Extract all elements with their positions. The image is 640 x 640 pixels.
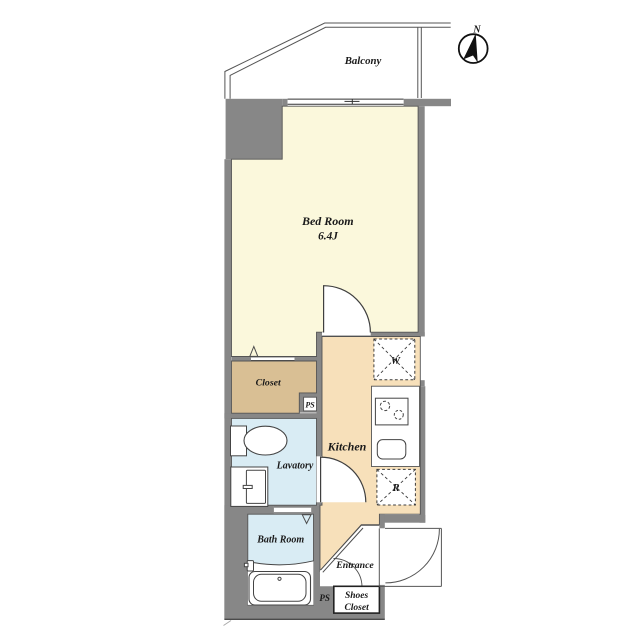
svg-text:6.4J: 6.4J [318,230,338,242]
svg-text:Bath Room: Bath Room [256,535,304,546]
svg-text:Kitchen: Kitchen [327,440,367,454]
svg-text:R: R [392,483,400,494]
svg-text:Lavatory: Lavatory [276,460,314,471]
svg-text:PS: PS [319,593,330,603]
svg-text:W: W [391,356,401,367]
svg-text:Closet: Closet [344,603,369,613]
svg-text:Balcony: Balcony [344,55,382,67]
svg-text:N: N [472,25,481,36]
svg-text:Closet: Closet [256,377,281,388]
svg-text:PS: PS [305,400,315,409]
svg-text:Entrance: Entrance [335,560,374,571]
svg-text:Bed Room: Bed Room [301,214,354,228]
svg-text:Shoes: Shoes [345,591,369,601]
